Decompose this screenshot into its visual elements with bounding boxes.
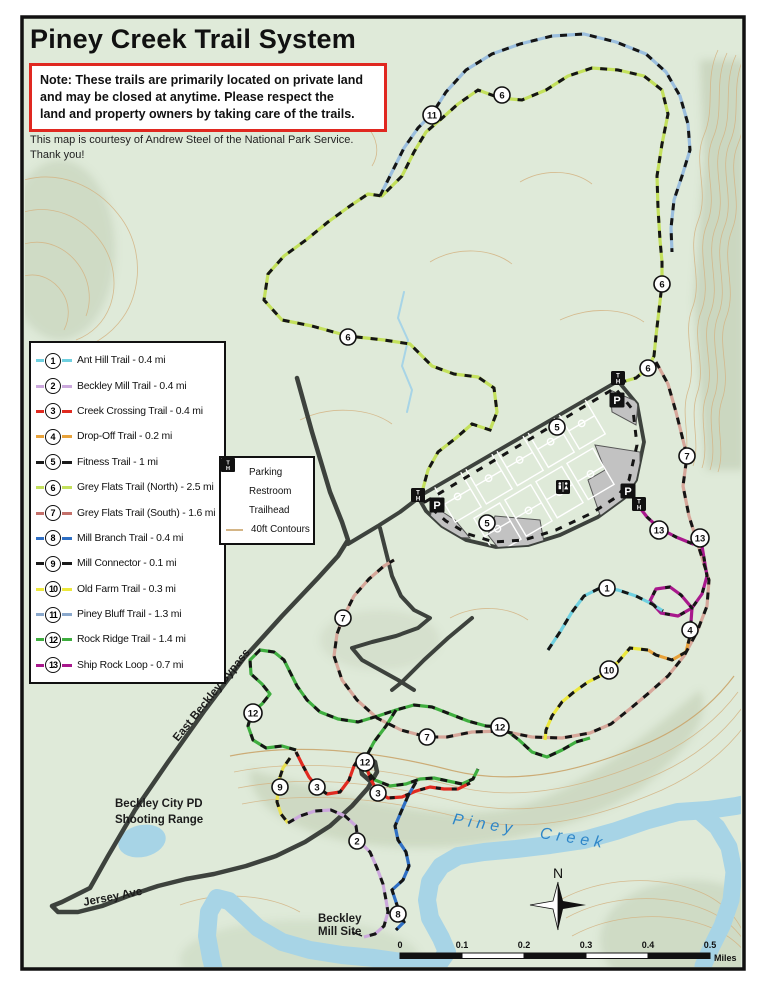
trail-list-item: 5Fitness Trail - 1 mi [36,450,224,475]
svg-text:7: 7 [340,613,345,624]
svg-text:12: 12 [248,708,259,719]
trail-list-item: 2Beckley Mill Trail - 0.4 mi [36,373,224,398]
trail-list-item: 3Creek Crossing Trail - 0.4 mi [36,399,224,424]
svg-text:0.3: 0.3 [580,940,593,950]
svg-text:H: H [226,466,230,472]
trail-list-label: Creek Crossing Trail - 0.4 mi [77,406,203,417]
parking-icon: P [430,498,445,513]
svg-text:8: 8 [395,909,400,920]
trail-color-line [62,359,72,362]
trail-list-label: Piney Bluff Trail - 1.3 mi [77,609,181,620]
svg-text:10: 10 [604,665,615,676]
note-line: and may be closed at anytime. Please res… [40,89,376,106]
svg-text:7: 7 [424,732,429,743]
trail-color-line [62,410,72,413]
svg-text:6: 6 [499,90,504,101]
trail-list-item: 8Mill Branch Trail - 0.4 mi [36,526,224,551]
trail-marker: 5 [479,515,495,531]
trail-marker: 8 [390,906,406,922]
svg-text:0.4: 0.4 [642,940,655,950]
trailhead-icon: TH [227,504,241,518]
trail-marker: 6 [494,87,510,103]
trail-marker: 3 [370,785,386,801]
trail-marker: 6 [640,360,656,376]
note-box: Note: These trails are primarily located… [29,63,387,132]
trail-number-badge: 2 [45,378,61,394]
restroom-icon [227,485,241,499]
trail-marker: 4 [682,622,698,638]
trail-color-line [36,486,44,489]
trail-color-line [36,562,44,565]
trail-list-label: Drop-Off Trail - 0.2 mi [77,431,172,442]
trail-marker: 1 [599,580,615,596]
trailhead-icon: TH [411,488,425,503]
trail-color-line [62,664,72,667]
trail-marker: 13 [650,521,668,539]
svg-text:P: P [433,500,440,512]
svg-text:2: 2 [354,836,359,847]
trail-list-item: 13Ship Rock Loop - 0.7 mi [36,653,224,678]
svg-text:9: 9 [277,782,282,793]
courtesy-text: This map is courtesy of Andrew Steel of … [30,133,353,163]
key-row-restroom: Restroom [227,482,308,501]
key-row-contours: 40ft Contours [227,520,308,539]
trail-marker: 10 [600,661,618,679]
page-title: Piney Creek Trail System [30,24,356,55]
parking-icon: P [621,484,636,499]
svg-text:P: P [624,486,631,498]
svg-text:H: H [416,497,420,503]
svg-text:5: 5 [484,518,490,529]
trail-marker: 11 [423,106,441,124]
trail-number-badge: 10 [45,581,61,597]
trail-list-legend: 1Ant Hill Trail - 0.4 mi2Beckley Mill Tr… [29,341,226,684]
trail-list-item: 4Drop-Off Trail - 0.2 mi [36,424,224,449]
trail-list-label: Mill Connector - 0.1 mi [77,558,176,569]
trail-list-label: Ant Hill Trail - 0.4 mi [77,355,165,366]
trail-list-label: Mill Branch Trail - 0.4 mi [77,533,183,544]
trail-marker: 5 [549,419,565,435]
trail-color-line [36,664,44,667]
trail-color-line [62,537,72,540]
map-symbol-key: P Parking Restroom TH Trailhead 40ft Con… [219,456,315,545]
svg-text:12: 12 [495,722,506,733]
svg-text:Miles: Miles [714,953,737,963]
trail-list-item: 10Old Farm Trail - 0.3 mi [36,577,224,602]
trail-color-line [36,537,44,540]
trail-number-badge: 3 [45,403,61,419]
trail-marker: 9 [272,779,288,795]
svg-text:6: 6 [345,332,350,343]
trail-list-item: 1Ant Hill Trail - 0.4 mi [36,348,224,373]
trail-marker: 6 [654,276,670,292]
key-row-parking: P Parking [227,463,308,482]
trailhead-icon: TH [611,371,625,386]
trail-number-badge: 13 [45,657,61,673]
trail-list-label: Old Farm Trail - 0.3 mi [77,584,176,595]
trail-marker: 2 [349,833,365,849]
trail-marker: 7 [335,610,351,626]
trail-color-line [36,435,44,438]
note-line: Note: These trails are primarily located… [40,72,376,89]
trail-number-badge: 4 [45,429,61,445]
trail-list-item: 7Grey Flats Trail (South) - 1.6 mi [36,500,224,525]
svg-text:12: 12 [360,757,371,768]
trail-color-line [62,435,72,438]
mill-site-label: Beckley [318,913,362,925]
note-line: land and property owners by taking care … [40,106,376,123]
trail-list-item: 11Piney Bluff Trail - 1.3 mi [36,602,224,627]
trail-list-label: Rock Ridge Trail - 1.4 mi [77,634,186,645]
trail-color-line [36,410,44,413]
svg-text:0.5: 0.5 [704,940,717,950]
trail-color-line [62,486,72,489]
svg-text:P: P [613,395,620,407]
trail-color-line [36,588,44,591]
trail-color-line [36,461,44,464]
svg-text:0.2: 0.2 [518,940,531,950]
svg-text:3: 3 [375,788,380,799]
restroom-icon [556,480,570,494]
svg-text:7: 7 [684,451,689,462]
trail-color-line [62,461,72,464]
trail-color-line [36,359,44,362]
svg-text:0: 0 [397,940,402,950]
svg-text:4: 4 [687,625,693,636]
trail-marker: 6 [340,329,356,345]
trail-marker: 3 [309,779,325,795]
trail-number-badge: 1 [45,353,61,369]
trail-list-item: 12Rock Ridge Trail - 1.4 mi [36,627,224,652]
trail-list-label: Grey Flats Trail (North) - 2.5 mi [77,482,214,493]
svg-text:H: H [637,506,641,512]
trail-number-badge: 7 [45,505,61,521]
trail-color-line [62,588,72,591]
trail-marker: 7 [419,729,435,745]
trail-color-line [62,638,72,641]
trail-number-badge: 11 [45,607,61,623]
svg-text:H: H [616,380,620,386]
shooting-range-label: Beckley City PD [115,798,203,810]
svg-text:1: 1 [604,583,610,594]
trail-marker: 12 [491,718,509,736]
map-page: P P P TH TH TH 6116665751313174101212712… [0,0,768,994]
trail-marker: 12 [356,753,374,771]
trail-color-line [36,613,44,616]
trail-color-line [62,562,72,565]
trail-color-line [62,512,72,515]
svg-text:0.1: 0.1 [456,940,469,950]
svg-text:3: 3 [314,782,319,793]
trail-color-line [62,613,72,616]
trail-marker: 12 [244,704,262,722]
trail-marker: 7 [679,448,695,464]
trail-marker: 13 [691,529,709,547]
parking-icon: P [610,393,625,408]
trail-list-label: Fitness Trail - 1 mi [77,457,158,468]
svg-text:13: 13 [695,533,706,544]
trail-number-badge: 5 [45,454,61,470]
trail-color-line [36,638,44,641]
svg-text:Shooting Range: Shooting Range [115,814,203,826]
key-row-trailhead: TH Trailhead [227,501,308,520]
svg-text:Mill Site: Mill Site [318,926,361,938]
trail-list-label: Beckley Mill Trail - 0.4 mi [77,381,187,392]
trail-number-badge: 8 [45,530,61,546]
trail-list-label: Grey Flats Trail (South) - 1.6 mi [77,508,215,519]
svg-text:11: 11 [427,110,438,121]
trail-number-badge: 12 [45,632,61,648]
trail-list-label: Ship Rock Loop - 0.7 mi [77,660,183,671]
trail-color-line [62,385,72,388]
svg-text:13: 13 [654,525,665,536]
trailhead-icon: TH [632,497,646,512]
contour-line-swatch [226,529,243,531]
trail-number-badge: 9 [45,556,61,572]
trail-number-badge: 6 [45,480,61,496]
svg-text:6: 6 [659,279,664,290]
trail-list-item: 6Grey Flats Trail (North) - 2.5 mi [36,475,224,500]
trail-list-item: 9Mill Connector - 0.1 mi [36,551,224,576]
svg-text:5: 5 [554,422,560,433]
svg-text:6: 6 [645,363,650,374]
svg-text:N: N [553,865,563,881]
trail-color-line [36,385,44,388]
trail-color-line [36,512,44,515]
